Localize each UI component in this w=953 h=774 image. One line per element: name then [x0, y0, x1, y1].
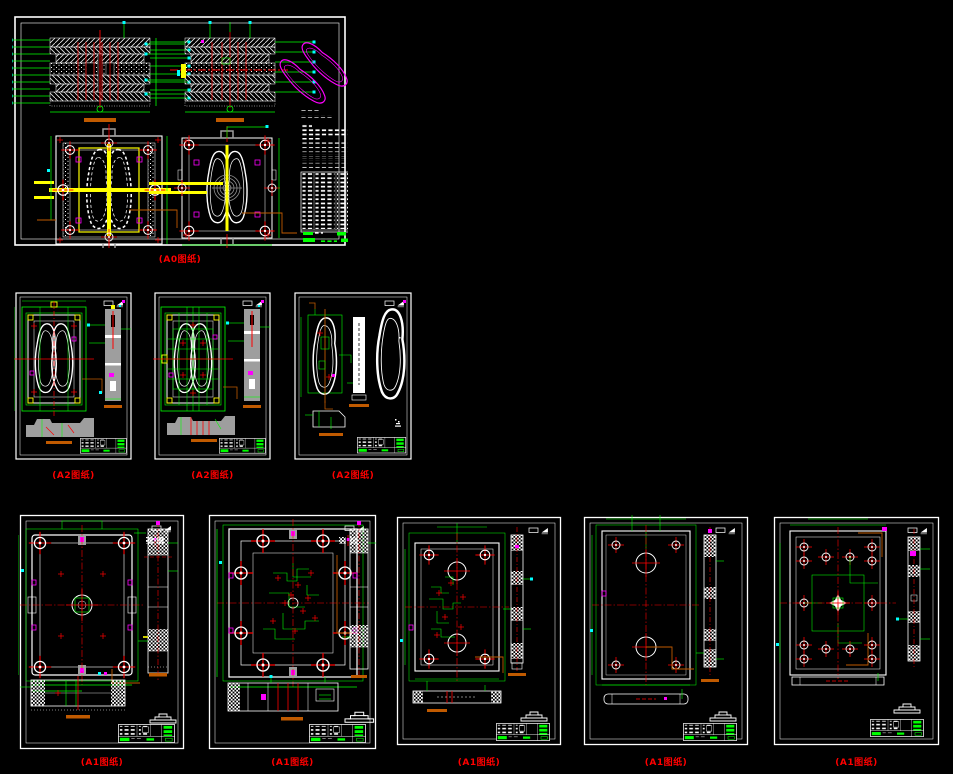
a1-2-drawing: [207, 513, 378, 751]
projection-symbol-icon: [529, 528, 548, 534]
sheet-label: (A2图纸): [293, 468, 413, 481]
fixed-half-plan-view: [149, 125, 297, 248]
bottom-section-view: [228, 675, 338, 721]
technical-notes-block: [302, 124, 348, 168]
sheet-a2-3: (A2图纸): [293, 291, 413, 481]
sheet-label: (A1图纸): [395, 755, 563, 768]
parts-list-table: [301, 172, 348, 242]
stamp-icon: [150, 714, 176, 723]
part-detail-view: [305, 411, 345, 436]
part-caption-micro-text: [300, 110, 320, 113]
a1-3-drawing: [395, 515, 563, 747]
title-block: [357, 437, 405, 453]
part-side-profile-view: [347, 317, 369, 407]
plate-plan-view: [776, 519, 896, 679]
side-section-strip: [896, 529, 930, 669]
part-top-view: [301, 303, 351, 409]
stamp-icon: [710, 712, 736, 721]
projection-symbol-icon: [385, 301, 404, 307]
sheet-label: (A2图纸): [153, 468, 272, 481]
part-bottom-view: [377, 309, 404, 398]
a2-1-drawing: [14, 291, 133, 461]
side-section-strip: [138, 521, 178, 681]
plate-plan-view: [217, 519, 369, 687]
plate-plan-view: [400, 523, 509, 681]
title-block: [870, 719, 923, 736]
sheet-a0-assembly: (A0图纸): [12, 14, 348, 265]
cad-model-space: (A0图纸) (A2图纸): [0, 0, 953, 774]
projection-symbol-icon: [908, 528, 927, 534]
a2-2-drawing: [153, 291, 272, 461]
title-block: [496, 723, 549, 740]
sheet-a1-3: (A1图纸): [395, 515, 563, 768]
stamp-icon: [521, 712, 547, 721]
bottom-bar-view: [413, 681, 501, 712]
a1-5-drawing: [772, 515, 941, 747]
core-plate-plan-view: [14, 301, 102, 417]
stamp-icon: [345, 712, 374, 722]
side-section-strip: [696, 527, 724, 682]
side-section-strip: [342, 521, 376, 678]
sheet-a1-5: (A1图纸): [772, 515, 941, 768]
bottom-bar-view: [604, 689, 688, 704]
molded-part-iso-view: [275, 38, 348, 118]
stamp-icon: [894, 704, 920, 713]
title-block: [118, 724, 174, 742]
title-block: [309, 724, 365, 742]
side-section-strip: [226, 309, 270, 408]
sheet-a1-4: (A1图纸): [582, 515, 750, 768]
sheet-label: (A0图纸): [12, 252, 348, 265]
a0-drawing: [12, 14, 348, 248]
a1-4-drawing: [582, 515, 750, 747]
projection-symbol-icon: [716, 528, 735, 534]
title-block: [219, 438, 265, 453]
sheet-a2-1: (A2图纸): [14, 291, 133, 481]
sheet-a1-1: (A1图纸): [18, 513, 186, 768]
side-section-strip: [87, 305, 131, 408]
title-block: [80, 438, 126, 453]
sheet-a1-2: (A1图纸): [207, 513, 378, 768]
plate-plan-view: [18, 521, 144, 691]
assembly-section-view-1: [12, 21, 191, 122]
bottom-section-view: [20, 672, 125, 719]
sheet-label: (A2图纸): [14, 468, 133, 481]
a2-3-drawing: [293, 291, 413, 461]
plate-plan-view: [590, 515, 700, 685]
sheet-a2-2: (A2图纸): [153, 291, 272, 481]
sheet-label: (A1图纸): [582, 755, 750, 768]
title-block: [683, 723, 736, 740]
micro-annotation: [395, 419, 401, 427]
a1-1-drawing: [18, 513, 186, 751]
side-section-strip: [503, 527, 533, 676]
cavity-plate-plan-view: [153, 307, 237, 411]
sheet-label: (A1图纸): [207, 755, 378, 768]
sheet-label: (A1图纸): [772, 755, 941, 768]
moving-half-plan-view: [34, 124, 177, 248]
assembly-section-view-2: [145, 21, 316, 122]
sheet-label: (A1图纸): [18, 755, 186, 768]
